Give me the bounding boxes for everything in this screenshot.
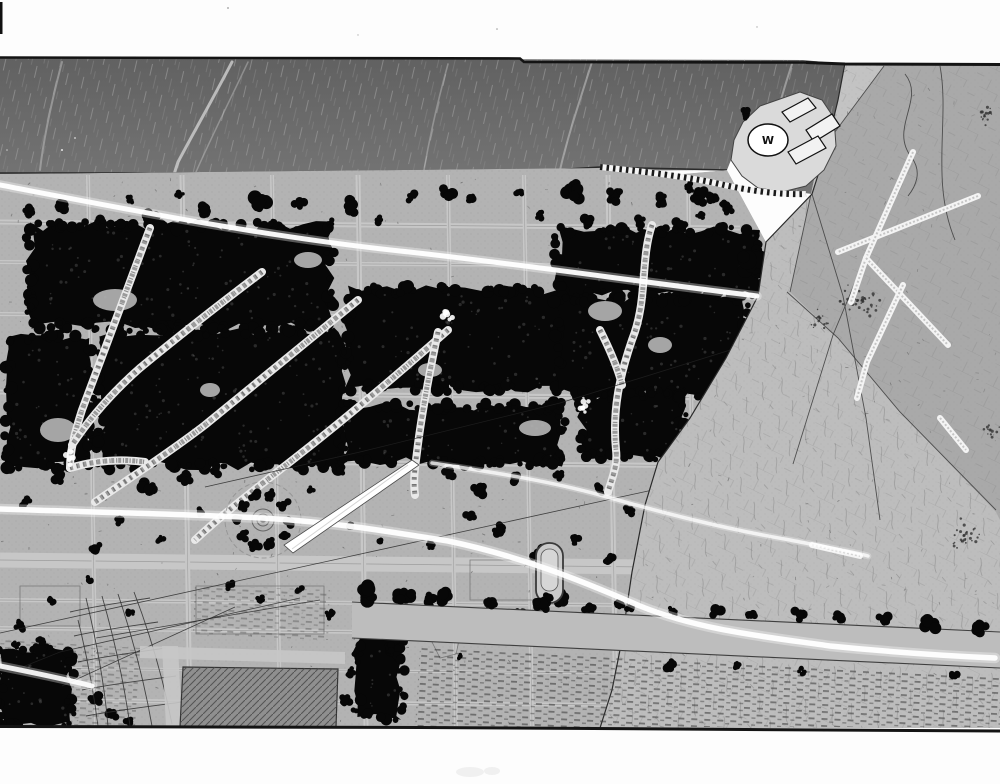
canopy-highlight [181,292,183,294]
canopy-highlight [162,399,165,402]
canopy-highlight [197,377,199,379]
canopy-highlight [507,377,509,379]
canopy-highlight [120,362,123,365]
canopy-highlight [182,423,184,425]
plain-debris [995,440,996,441]
rubble-speckle [956,529,958,531]
tree-canopy [358,651,363,656]
canopy-highlight [582,329,585,332]
canopy-highlight [383,320,386,323]
canopy-highlight [310,459,312,461]
tree-clump [327,612,332,617]
tree-canopy [344,294,351,301]
tree-clump [254,492,261,499]
canopy-highlight [654,405,657,408]
tree-clump [379,218,383,222]
tree-canopy [615,222,628,235]
canopy-highlight [588,351,591,354]
debris-mark [548,245,549,246]
canopy-highlight [24,435,27,438]
canopy-highlight [235,388,238,391]
canopy-highlight [359,448,360,449]
rubble-speckle [991,436,994,439]
canopy-highlight [171,314,174,317]
canopy-highlight [136,428,138,430]
canopy-highlight [239,450,242,453]
canopy-highlight [370,654,373,657]
canopy-highlight [416,335,419,338]
canopy-highlight [308,415,310,417]
rubble-speckle [980,116,982,118]
canopy-highlight [710,360,713,363]
tree-clump [178,194,181,197]
canopy-highlight [70,268,73,271]
tree-canopy [745,302,751,308]
tree-clump [307,488,313,494]
canopy-highlight [666,317,668,319]
canopy-highlight [12,688,14,690]
canopy-highlight [123,267,125,269]
canopy-highlight [655,389,657,391]
tree-clump [329,217,334,222]
canopy-highlight [470,302,473,305]
rubble-speckle [864,297,866,299]
canopy-highlight [416,373,419,376]
tree-canopy [463,404,472,413]
rubble-speckle [847,284,848,285]
canopy-highlight [65,346,68,349]
canopy-highlight [219,256,221,258]
canopy-highlight [179,283,182,286]
canopy-highlight [150,298,153,301]
canopy-highlight [194,247,196,249]
canopy-highlight [670,268,672,270]
tree-canopy [81,218,89,226]
canopy-highlight [720,340,722,342]
canopy-highlight [743,246,746,249]
tree-clump [16,642,21,647]
rubble-speckle [954,534,956,536]
dust-speck [61,149,63,151]
canopy-highlight [191,354,194,357]
tree-canopy [126,328,132,334]
canopy-highlight [218,372,220,374]
tree-clump [295,200,302,207]
rubble-speckle [875,309,878,312]
canopy-highlight [158,413,160,415]
tree-clump [94,219,100,225]
canopy-highlight [313,452,316,455]
tree-clump [213,470,219,476]
tree-canopy [47,645,53,651]
canopy-highlight [213,396,216,399]
debris-mark [111,481,114,482]
canopy-highlight [674,360,677,363]
tree-canopy [341,349,347,355]
canopy-highlight [703,351,706,354]
rubble-speckle [986,118,988,120]
canopy-highlight [191,341,193,343]
tree-canopy [601,227,606,232]
plain-debris [938,164,940,165]
tree-clump [200,206,208,214]
tree-canopy [400,691,406,697]
canopy-highlight [38,406,40,408]
canopy-highlight [329,377,331,379]
canopy-highlight [649,335,652,338]
rubble-speckle [990,433,992,435]
canopy-highlight [472,380,475,383]
canopy-highlight [535,378,538,381]
tree-canopy [119,330,127,338]
tree-canopy [376,712,386,722]
canopy-highlight [487,410,488,411]
tree-canopy [647,390,655,398]
canopy-highlight [539,382,541,384]
tree-canopy [200,325,207,332]
page-edge-mark [0,2,3,34]
canopy-highlight [318,450,319,451]
rubble-speckle [818,315,820,317]
tree-canopy [406,400,413,407]
canopy-highlight [195,358,198,361]
canopy-highlight [242,424,244,426]
tree-canopy [355,659,361,665]
canopy-highlight [318,367,321,370]
canopy-highlight [647,336,649,338]
white-splat [586,399,591,404]
rubble-speckle [817,309,818,310]
city-block-hatch [193,585,330,640]
canopy-highlight [44,458,46,460]
tree-canopy [92,436,104,448]
tree-canopy [3,401,14,412]
tree-canopy [375,405,382,412]
tree-canopy [355,694,367,706]
canopy-highlight [504,299,507,302]
canopy-highlight [383,452,385,454]
tree-canopy [347,317,354,324]
plain-debris [760,544,761,546]
canopy-highlight [103,318,106,321]
tree-canopy [64,698,71,705]
canopy-highlight [104,432,106,434]
tree-canopy [390,398,402,410]
canopy-highlight [499,425,501,427]
canopy-highlight [238,432,240,434]
tree-canopy [555,449,563,457]
tree-canopy [355,641,366,652]
rubble-speckle [986,106,989,109]
canopy-highlight [55,404,57,406]
canopy-highlight [632,243,633,244]
canopy-highlight [121,443,124,446]
white-splat [583,410,586,413]
canopy-highlight [685,374,688,377]
rubble-speckle [971,540,973,542]
canopy-highlight [229,280,232,283]
canopy-highlight [38,698,41,701]
tree-canopy [479,384,485,390]
canopy-highlight [217,338,218,339]
tree-canopy [561,426,566,431]
tree-canopy [128,219,139,230]
tree-clump [268,221,274,227]
tree-clump [186,477,194,485]
canopy-highlight [44,414,47,417]
canopy-highlight [485,411,487,413]
rubble-speckle [982,118,984,120]
canopy-highlight [714,268,716,270]
tree-clump [700,215,705,220]
tree-canopy [220,463,226,469]
tree-canopy [565,227,576,238]
tree-clump [744,107,751,114]
canopy-highlight [305,282,308,285]
tree-canopy [0,415,12,427]
canopy-highlight [619,324,622,327]
tree-clump [23,498,29,504]
canopy-highlight [57,374,59,376]
canopy-highlight [289,260,292,263]
rubble-speckle [983,428,986,431]
canopy-highlight [391,456,393,458]
tree-canopy [376,289,385,298]
tree-canopy [715,222,727,234]
canopy-highlight [187,240,190,243]
canopy-highlight [527,333,530,336]
canopy-highlight [702,348,703,349]
canopy-highlight [622,239,624,241]
tree-clump [797,611,804,618]
canopy-highlight [708,274,711,277]
tree-canopy [607,224,614,231]
tree-canopy [664,391,670,397]
canopy-highlight [451,322,453,324]
canopy-highlight [77,257,79,259]
tree-canopy [352,651,357,656]
tree-canopy [427,405,433,411]
canopy-highlight [23,692,25,694]
tree-canopy [46,462,53,469]
canopy-highlight [592,331,594,333]
canopy-highlight [115,359,118,362]
canopy-highlight [166,288,169,291]
canopy-highlight [522,340,525,343]
tree-clump [573,542,577,546]
margin-smudge [456,767,484,777]
tree-canopy [64,664,72,672]
canopy-highlight [416,378,419,381]
canopy-highlight [138,424,139,425]
canopy-highlight [680,258,682,260]
canopy-highlight [461,301,464,304]
canopy-highlight [46,264,48,266]
canopy-highlight [36,407,38,409]
plain-debris [857,112,858,116]
canopy-highlight [389,419,392,422]
tree-canopy [581,454,586,459]
canopy-highlight [251,317,253,319]
tree-clump [99,224,106,231]
rubble-speckle [969,537,972,540]
tree-canopy [741,224,752,235]
canopy-highlight [72,394,75,397]
tree-canopy [601,392,608,399]
canopy-highlight [152,258,155,261]
canopy-highlight [722,273,725,276]
canopy-highlight [188,245,190,247]
canopy-highlight [267,427,269,429]
tree-canopy [271,326,279,334]
canopy-highlight [156,385,158,387]
tree-canopy [253,218,262,227]
plain-debris [943,391,945,392]
tree-clump [687,189,692,194]
canopy-highlight [487,447,490,450]
canopy-highlight [407,418,410,421]
canopy-highlight [513,422,515,424]
canopy-highlight [387,424,389,426]
canopy-highlight [428,445,430,447]
tree-clump [351,670,357,676]
tree-canopy [653,457,659,463]
tree-clump [467,195,474,202]
tree-clump [686,185,690,189]
tree-canopy [0,431,9,440]
canopy-highlight [182,271,184,273]
canopy-highlight [528,301,531,304]
tree-canopy [116,219,126,229]
canopy-highlight [670,364,672,366]
tree-canopy [449,284,461,296]
canopy-highlight [70,378,72,380]
rubble-speckle [953,545,956,548]
canopy-highlight [243,444,246,447]
canopy-highlight [335,355,337,357]
canopy-highlight [735,285,738,288]
canopy-highlight [194,445,196,447]
tree-canopy [6,338,14,346]
canopy-highlight [514,373,517,376]
tree-clump [228,583,233,588]
tree-canopy [316,458,326,468]
tree-canopy [343,400,350,407]
canopy-highlight [59,280,62,283]
canopy-highlight [389,370,392,373]
tree-canopy [253,327,265,339]
tree-clump [406,589,416,599]
canopy-highlight [438,351,440,353]
canopy-highlight [130,391,133,394]
tree-canopy [614,292,626,304]
tree-clump [410,189,418,197]
canopy-highlight [279,275,281,277]
landmark-label: W [762,134,774,147]
rubble-speckle [990,108,991,109]
canopy-highlight [447,293,450,296]
canopy-highlight [447,321,450,324]
canopy-highlight [292,320,294,322]
tree-canopy [553,317,563,327]
canopy-highlight [643,432,646,435]
canopy-highlight [538,329,540,331]
tree-canopy [67,704,77,714]
canopy-highlight [114,454,117,457]
canopy-highlight [269,337,271,339]
rubble-speckle [867,308,870,311]
canopy-highlight [217,345,219,347]
rubble-speckle [995,431,998,434]
canopy-highlight [654,386,657,389]
canopy-highlight [709,305,711,307]
canopy-highlight [660,363,663,366]
plain-debris [874,401,875,403]
canopy-highlight [50,293,51,294]
tree-clump [459,654,463,658]
rubble-speckle [871,306,873,308]
dust-speck [6,149,8,151]
canopy-highlight [437,456,440,459]
canopy-highlight [588,438,591,441]
canopy-highlight [358,345,361,348]
rubble-speckle [822,315,823,316]
debris-mark [73,476,74,478]
canopy-highlight [107,231,110,234]
canopy-highlight [30,444,32,446]
canopy-highlight [141,262,144,265]
tree-canopy [554,343,563,352]
canopy-highlight [312,358,315,361]
canopy-highlight [589,408,591,410]
canopy-highlight [318,317,321,320]
rubble-speckle [983,114,985,116]
canopy-highlight [670,380,673,383]
canopy-highlight [31,702,34,705]
rubble-speckle [987,428,989,430]
aerial-park-illustration: W [0,0,1000,784]
canopy-highlight [267,297,269,299]
dust-speck [357,34,358,35]
forest-clearing [519,420,551,436]
rubble-speckle [961,541,963,543]
canopy-highlight [622,328,624,330]
canopy-highlight [249,430,252,433]
canopy-highlight [308,460,311,463]
tree-clump [749,613,754,618]
tree-canopy [5,382,18,395]
rubble-speckle [970,532,973,535]
tree-clump [833,610,841,618]
tree-canopy [92,325,99,332]
canopy-highlight [406,434,408,436]
canopy-highlight [501,307,503,309]
canopy-highlight [306,233,308,235]
canopy-highlight [688,258,691,261]
canopy-highlight [634,346,637,349]
tree-canopy [98,415,109,426]
canopy-highlight [130,320,131,321]
tree-canopy [557,223,565,231]
tree-clump [473,486,483,496]
canopy-highlight [12,422,15,425]
canopy-highlight [166,431,167,432]
canopy-highlight [296,375,298,377]
debris-mark [9,302,12,303]
tree-clump [656,191,665,200]
canopy-highlight [448,376,451,379]
canopy-highlight [211,357,214,360]
